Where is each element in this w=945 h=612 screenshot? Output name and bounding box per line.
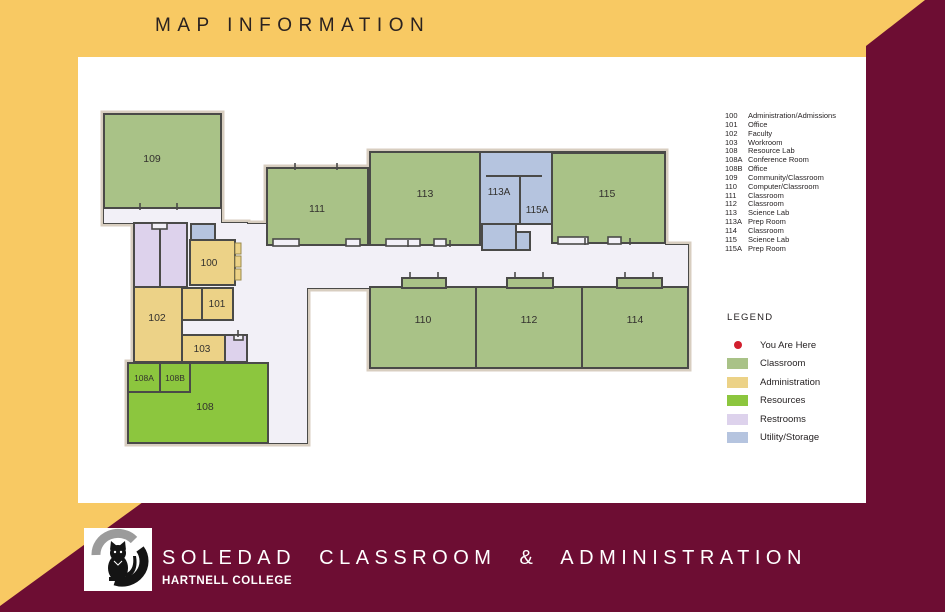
legend-swatch [727, 358, 748, 369]
legend-title: LEGEND [727, 312, 877, 323]
room-directory: 100Administration/Admissions101Office102… [725, 112, 875, 254]
map-room-utility-b [516, 232, 530, 250]
page-title: MAP INFORMATION [155, 15, 430, 37]
legend-label: You Are Here [760, 340, 816, 351]
legend-item: Resources [727, 392, 877, 411]
map-room-110 [370, 287, 476, 368]
map-room-restroom-1 [134, 223, 160, 287]
college-logo [84, 528, 152, 591]
map-room-label-108: 108 [196, 401, 214, 413]
legend-swatch [727, 395, 748, 406]
map-room-label-113: 113 [417, 188, 434, 200]
legend-swatch [727, 432, 748, 443]
map-room-label-101: 101 [209, 299, 226, 310]
map-room-label-109: 109 [143, 153, 161, 165]
map-room-label-111: 111 [309, 203, 325, 215]
legend-swatch [727, 414, 748, 425]
map-room-utility-1 [191, 224, 215, 240]
map-room-112 [476, 287, 582, 368]
legend-items: You Are HereClassroomAdministrationResou… [727, 336, 877, 447]
map-room-label-114: 114 [627, 314, 644, 326]
map-room-utility-a [482, 224, 516, 250]
legend-item: Classroom [727, 355, 877, 374]
map-panel: 109100102101103108108A108B11111311511011… [78, 57, 866, 503]
map-room-label-108A: 108A [134, 373, 154, 383]
map-room-label-115: 115 [599, 188, 616, 200]
map-room-114 [582, 287, 688, 368]
legend-item: Restrooms [727, 410, 877, 429]
map-room-label-110: 110 [415, 314, 432, 326]
map-room-restroom-2 [160, 223, 187, 287]
legend-item: Utility/Storage [727, 429, 877, 448]
legend: LEGEND You Are HereClassroomAdministrati… [727, 312, 877, 447]
college-name: HARTNELL COLLEGE [162, 575, 292, 587]
legend-label: Administration [760, 377, 820, 388]
legend-item: Administration [727, 373, 877, 392]
you-are-here-dot-icon [734, 341, 742, 349]
building-floor-plan: 109100102101103108108A108B11111311511011… [90, 100, 710, 460]
map-room-102 [134, 287, 182, 362]
room-number: 115A [725, 245, 748, 254]
room-list-item-115A: 115APrep Room [725, 245, 875, 254]
map-room-label-108B: 108B [165, 373, 185, 383]
legend-label: Classroom [760, 358, 805, 369]
legend-label: Utility/Storage [760, 432, 819, 443]
panther-logo-icon [84, 528, 152, 591]
map-room-101b [182, 288, 202, 320]
map-room-label-112: 112 [521, 314, 538, 326]
map-room-label-102: 102 [148, 312, 166, 324]
legend-label: Resources [760, 395, 805, 406]
legend-item: You Are Here [727, 336, 877, 355]
map-room-label-113A: 113A [488, 187, 511, 198]
legend-label: Restrooms [760, 414, 806, 425]
map-room-label-103: 103 [194, 344, 211, 355]
legend-swatch [727, 377, 748, 388]
room-name: Prep Room [748, 245, 786, 254]
building-title: SOLEDAD CLASSROOM & ADMINISTRATION [162, 547, 807, 570]
map-room-label-100: 100 [201, 258, 218, 269]
map-room-label-115A: 115A [526, 205, 549, 216]
map-room-109 [104, 114, 221, 208]
